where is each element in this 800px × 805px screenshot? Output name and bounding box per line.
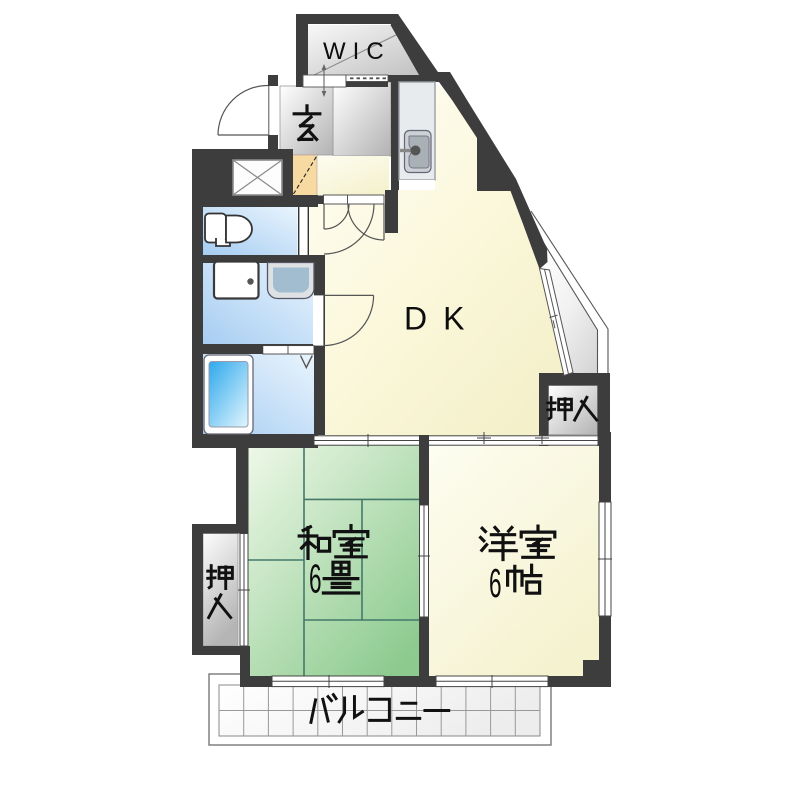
svg-text:6: 6 xyxy=(309,557,322,603)
svg-text:WIC: WIC xyxy=(323,38,391,65)
svg-text:DK: DK xyxy=(404,301,480,337)
svg-text:6: 6 xyxy=(489,561,502,607)
